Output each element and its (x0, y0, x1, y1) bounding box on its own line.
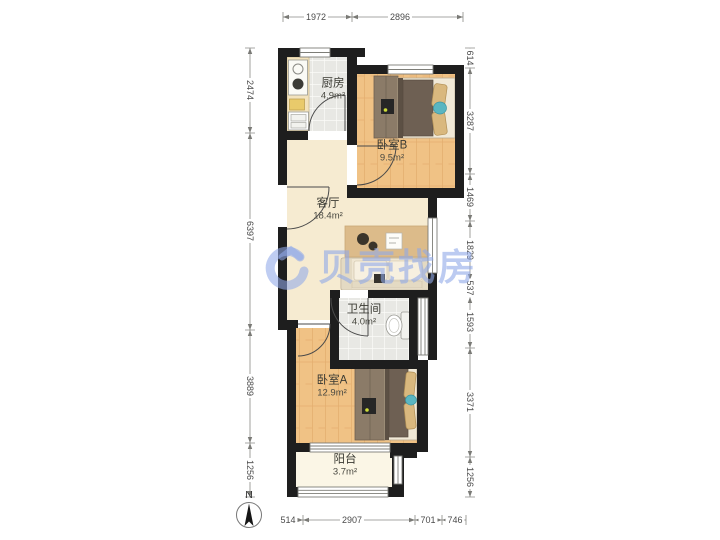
kitchen-sink-icon (289, 112, 309, 130)
north-label: N (245, 489, 253, 501)
dim-top-2: 2896 (388, 12, 412, 22)
dim-bottom-1: 514 (278, 515, 297, 525)
room-label-balcony: 阳台 3.7m² (333, 454, 357, 479)
sliding-door-window (310, 443, 390, 452)
tv-icon (381, 99, 394, 114)
room-name: 客厅 (313, 198, 343, 211)
room-label-bedroom-b: 卧室B 9.5m² (377, 140, 408, 165)
window (388, 65, 433, 74)
room-area: 9.5m² (377, 153, 408, 165)
floorplan-drawing (0, 0, 720, 540)
compass-icon (237, 503, 262, 528)
wardrobe-icon (355, 366, 385, 440)
dim-right-2: 3287 (465, 109, 475, 133)
room-label-bedroom-a: 卧室A 12.9m² (317, 375, 348, 400)
dim-right-3: 1469 (465, 185, 475, 209)
bed-icon (398, 78, 455, 138)
room-label-bathroom: 卫生间 4.0m² (347, 304, 382, 329)
dim-left-3: 3889 (245, 374, 255, 398)
room-area: 4.9m² (321, 91, 345, 103)
dim-left-1: 2474 (245, 78, 255, 102)
cutting-board-icon (290, 99, 305, 110)
dim-left-2: 6397 (245, 219, 255, 243)
kitchen-counter-icon (287, 57, 309, 131)
room-area: 3.7m² (333, 467, 357, 479)
window (300, 48, 330, 57)
room-area: 4.0m² (347, 317, 382, 329)
floorplan-canvas: 厨房 4.9m² 卧室B 9.5m² 客厅 18.4m² 卫生间 4.0m² 卧… (0, 0, 720, 540)
room-label-kitchen: 厨房 4.9m² (321, 78, 345, 103)
dim-left-4: 1256 (245, 458, 255, 482)
dim-top-1: 1972 (304, 12, 328, 22)
window (298, 487, 388, 497)
room-name: 阳台 (333, 454, 357, 467)
dim-bottom-4: 746 (445, 515, 464, 525)
sofa-icon (341, 258, 433, 290)
bedroom-b-furniture (374, 76, 455, 138)
dim-right-6: 1593 (465, 310, 475, 334)
dim-right-8: 1256 (465, 465, 475, 489)
room-name: 卫生间 (347, 304, 382, 317)
window (418, 298, 428, 355)
room-label-living-room: 客厅 18.4m² (313, 198, 343, 223)
dim-right-5: 537 (465, 278, 475, 297)
dim-bottom-2: 2907 (340, 515, 364, 525)
window (394, 456, 402, 484)
stove-icon (289, 60, 308, 95)
dim-right-1: 614 (465, 48, 475, 67)
room-name: 卧室A (317, 375, 348, 388)
room-name: 卧室B (377, 140, 408, 153)
dim-bottom-3: 701 (418, 515, 437, 525)
window (428, 218, 437, 273)
living-room-furniture (341, 226, 433, 290)
dim-right-4: 1829 (465, 238, 475, 262)
wardrobe-icon (374, 76, 398, 138)
room-area: 18.4m² (313, 211, 343, 223)
bedroom-a-furniture (355, 362, 417, 440)
bed-icon (385, 362, 417, 440)
dim-right-7: 3371 (465, 390, 475, 414)
room-area: 12.9m² (317, 388, 348, 400)
tv-icon (362, 398, 376, 414)
room-name: 厨房 (321, 78, 345, 91)
